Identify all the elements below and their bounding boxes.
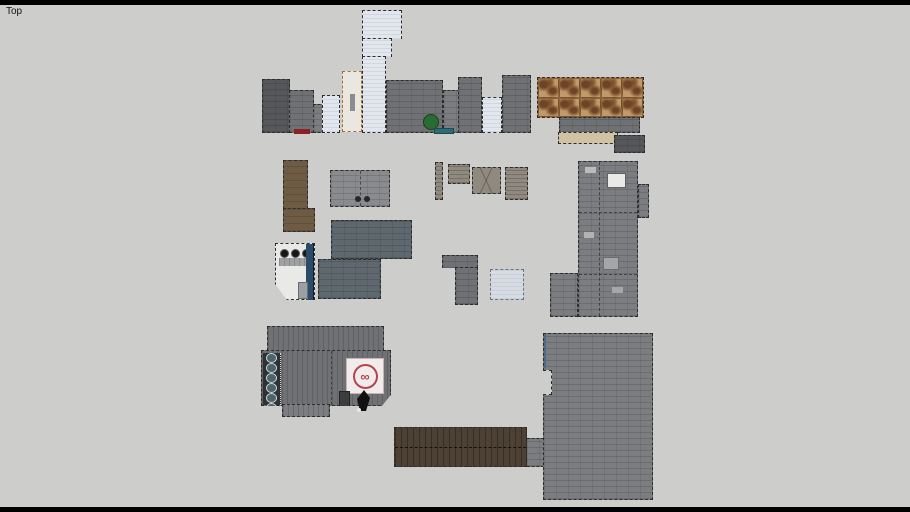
shed-small-1[interactable] bbox=[448, 164, 470, 184]
copper-panel bbox=[559, 78, 580, 98]
tan-terrace[interactable] bbox=[558, 132, 618, 144]
large-brick-rooftop[interactable] bbox=[543, 333, 653, 500]
white-tower-top[interactable] bbox=[362, 10, 402, 39]
copper-panel bbox=[580, 78, 601, 98]
drum-icon bbox=[266, 353, 277, 363]
roof-hatch bbox=[607, 173, 626, 188]
roof-post bbox=[339, 391, 350, 407]
white-tower-mid[interactable] bbox=[362, 38, 392, 57]
copper-panel bbox=[559, 98, 580, 118]
shed-small-2[interactable] bbox=[472, 167, 501, 194]
warehouse-lower-ext[interactable] bbox=[282, 404, 330, 417]
copper-panel bbox=[622, 98, 643, 118]
brown-building-upper[interactable] bbox=[283, 160, 308, 209]
white-tower-main[interactable] bbox=[362, 56, 386, 133]
building-row-2[interactable] bbox=[289, 90, 314, 133]
bluegray-roof-upper[interactable] bbox=[331, 220, 412, 259]
ridge-line bbox=[395, 447, 526, 448]
plank-longhouse[interactable] bbox=[394, 427, 527, 467]
building-tower-gray-2[interactable] bbox=[502, 75, 531, 133]
sketchup-viewport[interactable]: Top bbox=[0, 0, 910, 512]
roof-sign: ∞ bbox=[346, 358, 384, 394]
drum-icon bbox=[266, 393, 277, 403]
l-building-column[interactable] bbox=[455, 267, 478, 305]
roof-unit bbox=[603, 257, 619, 270]
copper-panel bbox=[538, 98, 559, 118]
roof-seam bbox=[599, 162, 600, 316]
copper-panel bbox=[601, 98, 622, 118]
roof-seam bbox=[579, 274, 637, 275]
equipment-deck bbox=[279, 258, 309, 266]
building-orange-trim[interactable] bbox=[342, 71, 362, 132]
white-plant-building[interactable] bbox=[275, 243, 315, 300]
vent-icon bbox=[355, 196, 361, 202]
drum-icon bbox=[266, 363, 277, 373]
building-center[interactable] bbox=[386, 80, 443, 133]
shed-small-3[interactable] bbox=[505, 167, 528, 200]
roof-vent bbox=[584, 232, 594, 238]
sign-symbol: ∞ bbox=[360, 370, 369, 383]
bluegray-roof-lower[interactable] bbox=[318, 259, 381, 299]
copper-panel bbox=[622, 78, 643, 98]
bottom-frame-bar bbox=[0, 507, 910, 512]
large-mid-building-ext[interactable] bbox=[550, 273, 578, 317]
copper-panel bbox=[580, 98, 601, 118]
vent-icon bbox=[364, 196, 370, 202]
copper-roof-building[interactable] bbox=[537, 77, 644, 118]
building-tower-gray-1[interactable] bbox=[458, 77, 482, 133]
big-roof-protrusion[interactable] bbox=[527, 438, 544, 467]
drum-icon bbox=[266, 403, 277, 413]
brown-building-lower[interactable] bbox=[283, 208, 315, 232]
building-twin-vents[interactable] bbox=[330, 170, 390, 207]
copper-panel bbox=[601, 78, 622, 98]
bird-figure[interactable] bbox=[355, 390, 373, 412]
view-name-label: Top bbox=[6, 6, 22, 17]
roof-box bbox=[298, 282, 308, 299]
roof-fan-icon bbox=[280, 249, 289, 258]
large-mid-building[interactable] bbox=[578, 161, 638, 317]
roof-vent bbox=[585, 167, 596, 173]
large-mid-building-bump[interactable] bbox=[638, 184, 649, 218]
roof-fan-icon bbox=[291, 249, 300, 258]
lightblue-pad[interactable] bbox=[490, 269, 524, 300]
roof-vent bbox=[612, 287, 623, 293]
wall-notch bbox=[543, 370, 552, 395]
copper-panel bbox=[538, 78, 559, 98]
drum-icon bbox=[266, 373, 277, 383]
drum-icon bbox=[266, 383, 277, 393]
shed-strip[interactable] bbox=[435, 162, 443, 200]
copper-building-lower-roof[interactable] bbox=[559, 117, 640, 133]
warehouse-upper-roof[interactable] bbox=[267, 326, 384, 351]
blue-edge-line bbox=[544, 334, 546, 368]
roof-vent-strip bbox=[350, 94, 355, 111]
roof-seam bbox=[579, 212, 637, 213]
teal-awning[interactable] bbox=[434, 128, 454, 134]
drum-rack bbox=[263, 353, 281, 405]
roof-seam bbox=[331, 351, 332, 405]
building-dark-left[interactable] bbox=[262, 79, 290, 133]
small-dark-annex[interactable] bbox=[614, 135, 645, 153]
building-white-strip[interactable] bbox=[482, 97, 502, 133]
top-frame-bar bbox=[0, 0, 910, 5]
building-white-small[interactable] bbox=[322, 95, 340, 133]
red-car[interactable] bbox=[294, 129, 310, 134]
